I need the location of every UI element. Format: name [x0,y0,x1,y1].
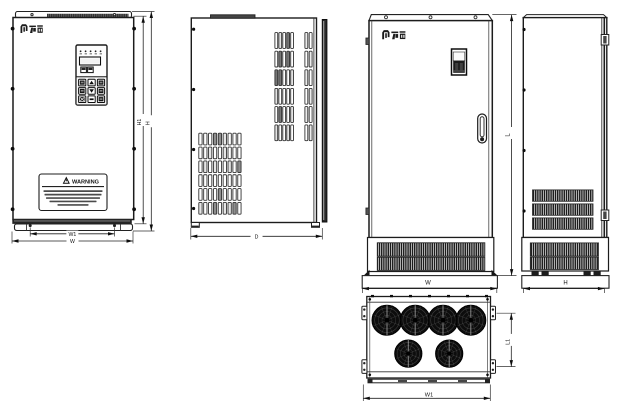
svg-text:W1: W1 [68,232,76,238]
svg-text:H1: H1 [137,119,143,126]
svg-text:W: W [70,239,75,245]
svg-text:WARNING: WARNING [72,180,99,186]
svg-text:L1: L1 [505,339,511,345]
svg-text:W1: W1 [425,393,433,399]
svg-text:H: H [145,121,151,125]
svg-text:W: W [425,280,431,286]
svg-text:H: H [563,280,567,286]
svg-text:D: D [255,234,259,240]
